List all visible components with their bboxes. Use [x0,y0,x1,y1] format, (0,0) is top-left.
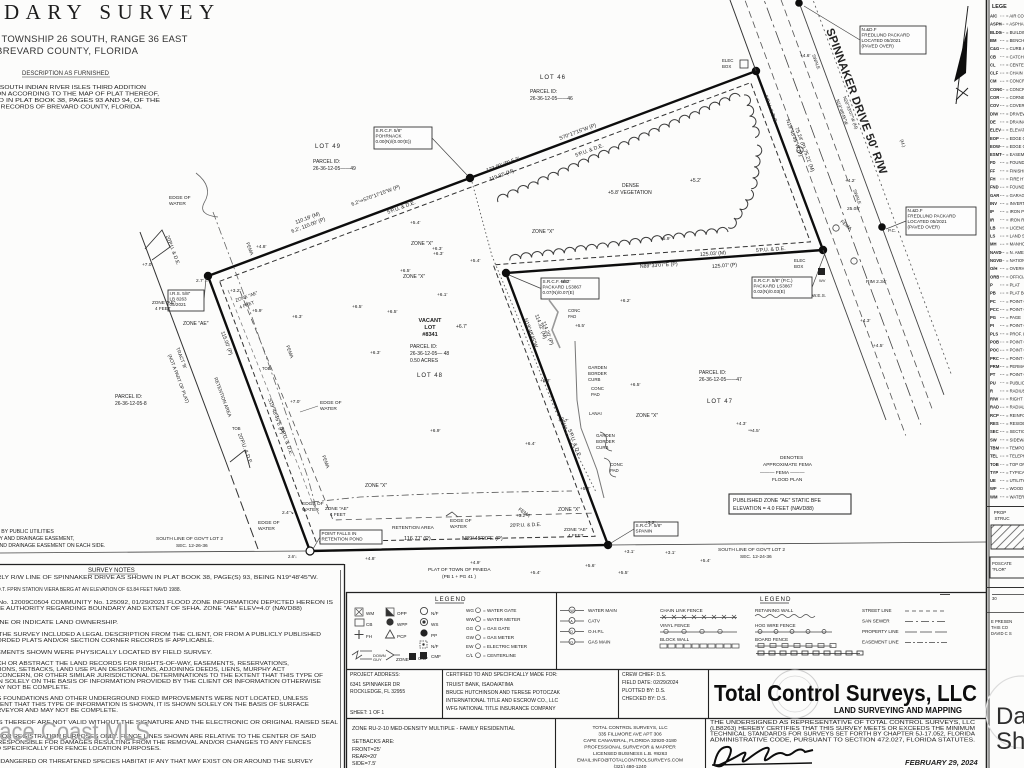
svg-text:POINT FALLS IN: POINT FALLS IN [322,531,357,536]
svg-text:(PAVED OVER): (PAVED OVER) [862,44,895,49]
svg-text:0.07(N)/0.07(E): 0.07(N)/0.07(E) [543,290,575,295]
svg-text:P.C.: P.C. [888,228,896,233]
svg-text:PARCEL ID:: PARCEL ID: [410,344,437,350]
svg-text:= FOUND: = FOUND [1006,160,1024,165]
svg-text:ZONE ″X″: ZONE ″X″ [411,241,433,247]
svg-text:PROP: PROP [994,510,1007,515]
svg-text:ELEVATION = 4.0 FEET (NAVD88): ELEVATION = 4.0 FEET (NAVD88) [733,506,814,512]
svg-text:Dav: Dav [996,703,1024,730]
svg-text:D: D [570,630,573,634]
svg-text:= CENTERLINE: = CENTERLINE [483,653,516,658]
svg-text:+5.9′: +5.9′ [660,236,670,242]
svg-text:FREDLUND PACKARD: FREDLUND PACKARD [862,33,911,38]
svg-text:+4.6′: +4.6′ [800,53,810,59]
svg-text:WATER MAIN: WATER MAIN [588,608,617,613]
svg-text:ELEC: ELEC [722,58,733,63]
svg-text:WFG NATIONAL TITLE INSURANCE C: WFG NATIONAL TITLE INSURANCE COMPANY [446,706,556,712]
svg-text:+6.5′: +6.5′ [400,268,410,274]
svg-text:D/W: D/W [990,111,998,116]
svg-text:= BENCH MARK: = BENCH MARK [1006,38,1024,43]
svg-text:= GAS METER: = GAS METER [483,635,515,640]
svg-text:= ASPHALT: = ASPHALT [1006,22,1024,27]
svg-text:= WOOD FENCE: = WOOD FENCE [1006,486,1024,491]
svg-text:6341 SPINNAKER DR: 6341 SPINNAKER DR [350,682,400,688]
svg-text:DE: DE [990,119,996,124]
svg-text:= LAND SURVEY: = LAND SURVEY [1006,234,1024,239]
svg-text:= CENTERLINE: = CENTERLINE [1006,62,1024,67]
svg-text:= IRON ROD: = IRON ROD [1006,217,1024,222]
svg-text:WATER: WATER [258,526,275,532]
svg-text:+4.9′: +4.9′ [470,560,480,566]
svg-text:= TEMPORARY B: = TEMPORARY B [1006,445,1024,450]
svg-text:RCP: RCP [990,413,999,418]
svg-text:WS: WS [431,622,438,627]
svg-text:(PB 1 + PG 41 ): (PB 1 + PG 41 ) [442,574,476,580]
svg-text:= CHAIN LINK FE: = CHAIN LINK FE [1006,71,1024,76]
svg-text:CHAIN LINK FENCE: CHAIN LINK FENCE [660,608,703,613]
svg-text:COR: COR [990,95,999,100]
svg-text:N89°48′00″E (P): N89°48′00″E (P) [462,536,503,542]
svg-text:LAND SURVEYING AND MAPPING: LAND SURVEYING AND MAPPING [834,706,962,715]
svg-text:C/L: C/L [466,653,474,658]
svg-text:BORDER: BORDER [596,439,615,444]
svg-text:116.77′ (P): 116.77′ (P) [404,536,431,542]
svg-text:26-36-12-05——47: 26-36-12-05——47 [699,377,742,383]
svg-text:POHRNACK: POHRNACK [376,134,403,139]
svg-text:+3.2′: +3.2′ [230,288,240,294]
svg-text:G: G [570,640,573,644]
svg-text:LOCATED 05/2021: LOCATED 05/2021 [862,38,902,43]
svg-text:MH: MH [990,242,997,247]
svg-text:EY AND DRAINAGE EASEMENT,: EY AND DRAINAGE EASEMENT, [0,536,74,542]
svg-text:WPP: WPP [397,622,407,627]
svg-text:EOP: EOP [990,136,999,141]
svg-text:PU: PU [990,380,996,385]
svg-text:CLF: CLF [990,71,999,76]
svg-text:ERLY R/W LINE OF SPINNAKER DRI: ERLY R/W LINE OF SPINNAKER DRIVE AS SHOW… [0,575,318,581]
svg-text:+5.2′: +5.2′ [580,486,590,492]
svg-text:= ELECTRIC METER: = ELECTRIC METER [483,644,528,649]
svg-text:SEC: SEC [990,429,999,434]
svg-text:A/C: A/C [990,14,997,19]
svg-text:FH: FH [990,177,996,182]
svg-text:= PROF. LAND S: = PROF. LAND S [1006,331,1024,336]
svg-text:PRM: PRM [990,364,1000,369]
svg-text:GAR: GAR [990,193,999,198]
svg-text:LS: LS [990,234,996,239]
svg-text:+6.2′: +6.2′ [540,378,550,384]
svg-text:ED SPECIFICALLY FOR FENCE LOCA: ED SPECIFICALLY FOR FENCE LOCATION PURPO… [0,746,161,752]
svg-text:+4.3′: +4.3′ [860,318,870,324]
svg-text:PLAT OF TOWN OF PINEDA: PLAT OF TOWN OF PINEDA [428,567,491,573]
svg-text:= CORNER: = CORNER [1006,95,1024,100]
svg-text:+6.2′: +6.2′ [560,279,570,285]
svg-text:URVEYOR AND MAY NOT BE COMPLET: URVEYOR AND MAY NOT BE COMPLETE. [0,708,118,714]
svg-text:LICENSED BUSINESS L.B. #8263: LICENSED BUSINESS L.B. #8263 [593,751,667,757]
svg-text:= RESIDENCE: = RESIDENCE [1006,421,1024,426]
svg-text:TOB: TOB [262,366,271,371]
svg-text:RAD: RAD [990,405,999,410]
svg-text:= COVERED: = COVERED [1006,103,1024,108]
svg-text:CL: CL [990,62,996,67]
svg-text:= PERMANENT R: = PERMANENT R [1006,364,1024,369]
svg-text:+5.4′: +5.4′ [410,220,420,226]
svg-text:PC: PC [990,299,996,304]
svg-text:= EASEMENT: = EASEMENT [1006,152,1024,157]
svg-text:+6.5′: +6.5′ [387,309,397,315]
svg-text:+5.5′: +5.5′ [618,570,628,576]
svg-text:+3.2′: +3.2′ [645,520,655,526]
svg-text:CHECKED BY: D.S.: CHECKED BY: D.S. [622,696,667,702]
svg-text:= FINISHED FLO: = FINISHED FLO [1006,168,1024,173]
svg-text:= OFFICIAL REC: = OFFICIAL REC [1006,274,1024,279]
svg-text:ZONE ″X″: ZONE ″X″ [365,483,387,489]
svg-text:GUY: GUY [373,657,382,662]
svg-text:VACANT: VACANT [419,318,442,324]
svg-text:PLS: PLS [990,331,998,336]
svg-text:ZONE ″AE″: ZONE ″AE″ [564,527,588,532]
svg-text:RIM 2.34′: RIM 2.34′ [866,279,886,285]
svg-text:= REINFORCED C: = REINFORCED C [1006,413,1024,418]
svg-text:R/W: R/W [990,397,998,402]
svg-text:SIDE=7.5′: SIDE=7.5′ [352,761,376,767]
svg-text:BLOCK WALL: BLOCK WALL [660,637,690,642]
svg-text:RES: RES [990,421,999,426]
svg-text:LOT: LOT [424,325,436,331]
svg-text:+6.7′: +6.7′ [558,418,568,424]
svg-text:= POINT OF BEG: = POINT OF BEG [1006,340,1024,345]
svg-text:E PRESEN: E PRESEN [991,619,1012,624]
svg-text:PARCEL ID:: PARCEL ID: [313,159,340,165]
svg-text:PAD: PAD [610,468,619,473]
svg-text:= POINT OF INT: = POINT OF INT [1006,323,1024,328]
svg-text:ADMINISTRATIVE CODE, PURSUANT: ADMINISTRATIVE CODE, PURSUANT TO SECTION… [710,737,975,743]
svg-text:TOB: TOB [232,426,241,431]
svg-text:= POINT OF REV: = POINT OF REV [1006,356,1024,361]
svg-text:+6.3′: +6.3′ [370,350,380,356]
svg-text:WF: WF [990,486,997,491]
svg-text:SOUTH LINE OF GOV′T LOT 2: SOUTH LINE OF GOV′T LOT 2 [156,536,223,542]
svg-text:EOW: EOW [990,144,1000,149]
svg-text:CB: CB [990,54,996,59]
svg-text:GW: GW [466,635,475,640]
svg-text:C RECORDS OF BREVARD COUNTY, F: C RECORDS OF BREVARD COUNTY, FLORIDA. [0,105,142,111]
svg-text:= UTILITY EASE: = UTILITY EASE [1006,478,1024,483]
svg-text:STRUC: STRUC [994,516,1009,521]
svg-text:EDGE OF: EDGE OF [169,195,191,201]
svg-text:IR: IR [990,217,994,222]
svg-text:FEBRUARY 29, 2024: FEBRUARY 29, 2024 [905,758,979,767]
svg-text:WM: WM [990,494,998,499]
svg-text:ZONE ″X″: ZONE ″X″ [558,507,580,513]
svg-text:D BY PUBLIC UTILITIES: D BY PUBLIC UTILITIES [0,529,54,535]
svg-text:PRC: PRC [990,356,999,361]
svg-text:= GARAGE: = GARAGE [1006,193,1024,198]
svg-text:LOCATED 05/2021: LOCATED 05/2021 [908,219,948,224]
svg-text:ZONE RU-2-10 MED-DENSITY MULTI: ZONE RU-2-10 MED-DENSITY MULTIPLE - FAMI… [352,726,515,732]
svg-text:LEGEND: LEGEND [760,596,791,603]
svg-text:4 FEET: 4 FEET [155,306,171,311]
svg-text:EDGE OF: EDGE OF [302,501,324,507]
svg-text:= BUILDING: = BUILDING [1006,30,1024,35]
svg-text:+6.2′: +6.2′ [620,298,630,304]
svg-text:EDGE OF: EDGE OF [320,400,342,406]
svg-text:O.H.P.L: O.H.P.L [588,629,604,634]
svg-text:PCP: PCP [397,634,406,639]
svg-text:C&G: C&G [990,46,999,51]
svg-text:+5.4′: +5.4′ [530,570,540,576]
svg-text:FRONT=25′: FRONT=25′ [352,747,381,753]
svg-text:= RADIAL: = RADIAL [1006,405,1024,410]
svg-text:CMF: CMF [431,654,441,659]
svg-text:BOARD FENCE: BOARD FENCE [755,637,788,642]
svg-text:30: 30 [992,596,997,601]
svg-text:SW: SW [990,437,997,442]
svg-text:ENDANGERED OR THREATENED SPECI: ENDANGERED OR THREATENED SPECIES HABITAT… [0,759,313,765]
svg-text:4 FEET: 4 FEET [330,512,346,517]
svg-text:= SIDEWALK: = SIDEWALK [1006,437,1024,442]
svg-text:0.02(N)/0.03(E): 0.02(N)/0.03(E) [754,289,786,294]
svg-text:DESCRIPTION AS FURNISHED: DESCRIPTION AS FURNISHED [22,71,110,77]
svg-text:FIELD DATE: 02/29/2024: FIELD DATE: 02/29/2024 [622,680,679,686]
svg-text:= WATER GATE: = WATER GATE [483,608,516,613]
svg-text:RETENTION AREA: RETENTION AREA [392,525,435,531]
svg-text:, TOWNSHIP 26 SOUTH, RANGE 36: , TOWNSHIP 26 SOUTH, RANGE 36 EAST [0,34,188,45]
svg-text:FREDLUND PACKARD: FREDLUND PACKARD [908,214,957,219]
svg-text:POSCATE: POSCATE [992,561,1012,566]
svg-text:UE: UE [990,478,996,483]
svg-text:LEGEND: LEGEND [435,596,466,603]
svg-text:ZONE ″AE″: ZONE ″AE″ [152,300,176,305]
svg-text:+6.9′: +6.9′ [430,428,440,434]
svg-text:+6.3′: +6.3′ [292,314,302,320]
svg-text:EDGE OF: EDGE OF [258,520,280,526]
svg-text:= TYPICAL: = TYPICAL [1006,470,1024,475]
svg-text:TYP: TYP [990,470,998,475]
svg-text:CB: CB [366,622,372,627]
svg-text:= NATIONAL GEO: = NATIONAL GEO [1006,258,1024,263]
svg-text:= TELEPHONE: = TELEPHONE [1006,454,1024,459]
svg-text:CORDED PLATS AND/OR SECTION CO: CORDED PLATS AND/OR SECTION CORNER RECOR… [0,638,214,644]
svg-text:GG: GG [466,626,474,631]
svg-text:REAR=20′: REAR=20′ [352,754,377,760]
svg-text:PB: PB [990,291,996,296]
svg-text:+6.1′: +6.1′ [437,292,447,298]
svg-text:+6.5′: +6.5′ [630,382,640,388]
svg-text:+6.4′: +6.4′ [525,441,535,447]
svg-text:INTERNATIONAL TITLE AND ESCROW: INTERNATIONAL TITLE AND ESCROW CO., LLC [446,698,559,704]
svg-text:EASEMENT LINE: EASEMENT LINE [862,640,899,645]
svg-text:TOB: TOB [990,462,999,467]
svg-text:S.R.C.F. 5/8″: S.R.C.F. 5/8″ [376,128,403,133]
svg-text:W: W [570,609,574,613]
svg-text:= RIGHT OF WAY: = RIGHT OF WAY [1006,397,1024,402]
svg-text:ION ACCORDING TO THE MAP OF PL: ION ACCORDING TO THE MAP OF PLAT THEREOF… [0,92,159,98]
svg-text:+5.2′: +5.2′ [690,178,701,184]
svg-text:PROPERTY LINE: PROPERTY LINE [862,629,899,634]
svg-text:LEGE: LEGE [992,4,1007,10]
svg-text:N/F: N/F [431,611,439,616]
svg-text:ZONE ″X″: ZONE ″X″ [636,413,658,419]
svg-text:BLE AUTHORITY REGARDING BOUNDA: BLE AUTHORITY REGARDING BOUNDARY AND EXT… [0,606,302,612]
svg-text:+5.8′ VEGETATION: +5.8′ VEGETATION [608,190,652,196]
svg-text:——— FEMA ———: ——— FEMA ——— [760,470,805,476]
svg-text:= CONCRETE: = CONCRETE [1006,87,1024,92]
svg-text:CAPE CANAVERAL, FLORIDA 3292: CAPE CANAVERAL, FLORIDA 32920-3180 [583,738,677,744]
svg-text:POB: POB [990,340,999,345]
svg-text:CREW CHIEF: D.S.: CREW CHIEF: D.S. [622,672,666,678]
svg-text:A SOUTH INDIAN RIVER ISLES THI: A SOUTH INDIAN RIVER ISLES THIRD ADDITIO… [0,85,146,91]
svg-text:ZONE ″AE″: ZONE ″AE″ [183,321,209,327]
svg-text:PROFESSIONAL SURVEYOR & MAPPER: PROFESSIONAL SURVEYOR & MAPPER [584,745,676,751]
svg-text:= RADIUS: = RADIUS [1006,388,1024,393]
svg-text:= WATER METER: = WATER METER [483,617,521,622]
svg-text:N.&D.F: N.&D.F [908,208,923,213]
svg-text:ROCKLEDGE, FL 32955: ROCKLEDGE, FL 32955 [350,689,405,695]
svg-text:PACKARD LS3867: PACKARD LS3867 [543,285,582,290]
svg-text:WATER: WATER [450,524,467,530]
svg-text:RETENTION POND: RETENTION POND [322,537,364,542]
svg-text:PACKARD LS3867: PACKARD LS3867 [754,284,793,289]
svg-text:VINYL FENCE: VINYL FENCE [660,623,690,628]
svg-text:LOT 49: LOT 49 [315,144,341,150]
svg-text:= FIRE HYDRANT: = FIRE HYDRANT [1006,177,1024,182]
svg-text:VEMENTS SHOWN WERE PHYSICALLY: VEMENTS SHOWN WERE PHYSICALLY LOCATED BY… [0,650,212,656]
svg-text:P: P [990,282,993,287]
svg-text:2.4′↘: 2.4′↘ [282,510,294,516]
svg-text:ZONE ″X″: ZONE ″X″ [532,229,554,235]
svg-text:PAD: PAD [568,314,576,319]
svg-text:= CATCH BASIN: = CATCH BASIN [1006,54,1024,59]
svg-text:DAVID C S: DAVID C S [991,631,1012,636]
svg-text:CERTIFIED TO AND SPECIFICALLY: CERTIFIED TO AND SPECIFICALLY MADE FOR: [446,672,558,678]
svg-text:25.08′: 25.08′ [847,206,860,212]
svg-text:D.O.T. FPRN STATION VIERA BERG: D.O.T. FPRN STATION VIERA BERG AT AN ELE… [0,587,181,593]
svg-text:THIS CO: THIS CO [991,625,1009,630]
svg-text:= GAS GATE: = GAS GATE [483,626,510,631]
svg-text:PROJECT ADDRESS:: PROJECT ADDRESS: [350,672,400,678]
svg-text:CONC: CONC [591,386,604,391]
svg-text:PI: PI [990,323,994,328]
svg-text:STREET LINE: STREET LINE [862,608,892,613]
svg-text:26-36-12-05——49: 26-36-12-05——49 [313,166,356,172]
svg-text:SEC. 12-26-36: SEC. 12-26-36 [176,543,208,549]
svg-text:= ELEVATION: = ELEVATION [1006,128,1024,133]
svg-text:PG: PG [990,315,996,320]
svg-text:= POINT OF TAN: = POINT OF TAN [1006,372,1024,377]
svg-text:EDGE OF: EDGE OF [450,518,472,524]
svg-text:+6.5′: +6.5′ [352,304,362,310]
svg-text:+5.9′: +5.9′ [252,308,262,314]
svg-text:= PLAT: = PLAT [1006,282,1020,287]
svg-text:ASPH: ASPH [990,22,1002,27]
svg-text:EMAIL:INFO@TOTALCONTROLSURVEYS: EMAIL:INFO@TOTALCONTROLSURVEYS.COM [577,758,683,764]
svg-text:RETAINING WALL: RETAINING WALL [755,608,794,613]
svg-text:CURB: CURB [588,377,601,382]
svg-text:0.00(N)/(0.00′(E)): 0.00(N)/(0.00′(E)) [376,139,412,144]
svg-text:= SECTION: = SECTION [1006,429,1024,434]
svg-text:ELEC: ELEC [794,258,805,263]
svg-text:GAS MAIN: GAS MAIN [588,640,610,645]
svg-text:WV: WV [819,278,826,283]
svg-text:= INVERT: = INVERT [1006,201,1024,206]
svg-text:+7.0′: +7.0′ [290,399,300,405]
svg-text:+4.8′: +4.8′ [256,244,266,250]
svg-text:= TOP OF BANK: = TOP OF BANK [1006,462,1024,467]
svg-text:pace Coast MLS: pace Coast MLS [0,718,150,746]
svg-text:PAD: PAD [591,392,600,397]
svg-text:SHEET: 1 OF 1: SHEET: 1 OF 1 [350,710,384,716]
svg-text:BRUCE HUTCHINSON AND TERESE PO: BRUCE HUTCHINSON AND TERESE POTOCZAK [446,690,561,696]
svg-text:26-36-12-05— 48: 26-36-12-05— 48 [410,351,449,357]
svg-text:= DRAINAGE EA: = DRAINAGE EA [1006,119,1024,124]
svg-text:= LICENSED BUS: = LICENSED BUS [1006,225,1024,230]
svg-text:+4.5′: +4.5′ [873,343,883,349]
svg-text:LOT 48: LOT 48 [417,373,443,379]
svg-text:PCC: PCC [990,307,999,312]
svg-text:SOUTH LINE OF GOV′T LOT 2: SOUTH LINE OF GOV′T LOT 2 [718,547,785,553]
svg-text:PLOTTED BY: D.S.: PLOTTED BY: D.S. [622,688,665,694]
svg-text:LANAI: LANAI [589,411,602,416]
svg-text:WG: WG [466,608,474,613]
svg-text:CATV: CATV [588,619,601,624]
svg-text:ORB: ORB [990,274,999,279]
svg-text:= POINT OF COM: = POINT OF COM [1006,348,1024,353]
svg-text:CMF: CMF [418,656,428,661]
svg-text:+7.0′: +7.0′ [142,262,152,268]
svg-text:335 FILLMORE AVE APT 306: 335 FILLMORE AVE APT 306 [598,732,662,738]
svg-text:= OVERHEAD: = OVERHEAD [1006,266,1024,271]
svg-text:GARDEN: GARDEN [596,433,615,438]
svg-text:TEL: TEL [990,454,998,459]
svg-text:She: She [996,728,1024,755]
svg-text:#8341: #8341 [422,332,438,338]
svg-text:SETBACKS ARE:: SETBACKS ARE: [352,739,395,745]
svg-text:(PAVED OVER): (PAVED OVER) [908,225,941,230]
svg-text:PP: PP [431,633,437,638]
svg-text:SEC. 12-24-36: SEC. 12-24-36 [740,554,772,560]
svg-text:+5.4′: +5.4′ [700,558,710,564]
svg-text:Total Control Surveys, LLC: Total Control Surveys, LLC [714,680,977,706]
svg-text:= PLAT BOOK: = PLAT BOOK [1006,291,1024,296]
svg-text:+3.1′: +3.1′ [665,550,675,556]
svg-text:I.R.S. 5/8″: I.R.S. 5/8″ [170,291,191,296]
svg-text:= WATER METER: = WATER METER [1006,494,1024,499]
svg-text:S.R.C.F. 5/8″ (P.C.): S.R.C.F. 5/8″ (P.C.) [754,278,794,283]
svg-text:FF: FF [990,168,996,173]
svg-text:FD: FD [990,160,996,165]
svg-text:PUBLISHED ZONE ″AE″ STATIC BFE: PUBLISHED ZONE ″AE″ STATIC BFE [733,498,821,504]
svg-text:= DRIVEWAY: = DRIVEWAY [1006,111,1024,116]
svg-text:DARY SURVEY: DARY SURVEY [4,0,221,24]
svg-text:26-36-12-05-8: 26-36-12-05-8 [115,401,147,407]
svg-text:WATER: WATER [302,507,319,513]
svg-text:TRUIST BANK, ISAOA/ATIMA: TRUIST BANK, ISAOA/ATIMA [446,682,514,688]
svg-text:WATER: WATER [169,201,186,207]
svg-text:+5.6′: +5.6′ [585,563,595,569]
svg-text:CURB: CURB [596,445,609,450]
svg-text:SPANIN: SPANIN [636,529,653,534]
svg-text:ELEV: ELEV [990,128,1001,133]
svg-text:FND: FND [990,185,999,190]
svg-text:4 FEET: 4 FEET [568,533,584,538]
svg-text:W.E.S.: W.E.S. [812,293,826,298]
svg-text:CONC: CONC [610,462,623,467]
svg-text:2.7′→: 2.7′→ [196,278,208,284]
svg-text:ZONE: ZONE [396,657,409,662]
svg-text:= POINT OF CUR: = POINT OF CUR [1006,299,1024,304]
svg-text:SURVEY NOTES: SURVEY NOTES [88,568,135,574]
